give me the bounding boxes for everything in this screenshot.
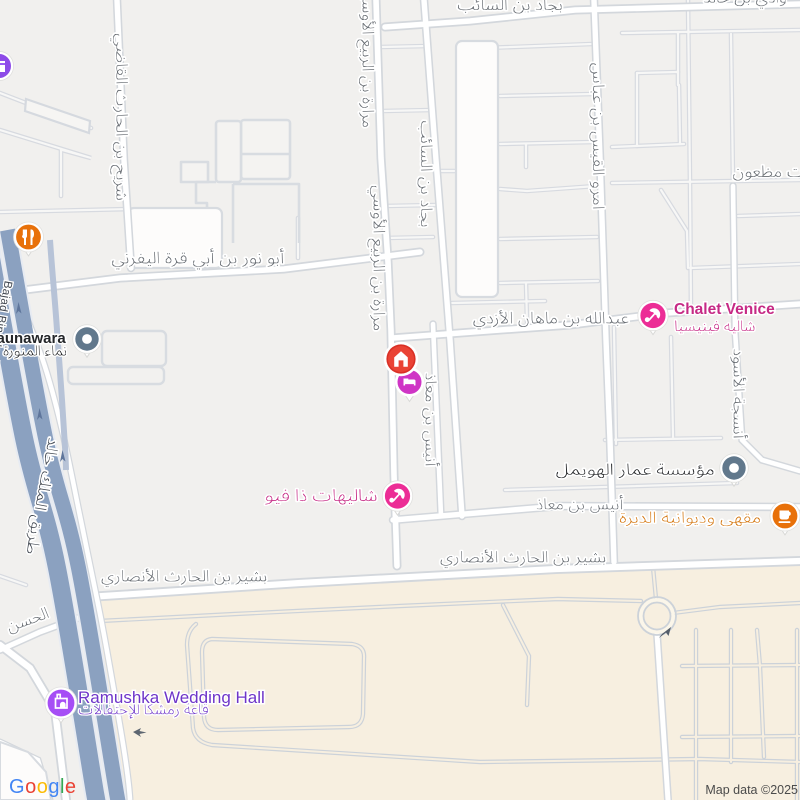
svg-text:Map data ©2025: Map data ©2025 bbox=[705, 783, 798, 797]
svg-text:Maunawara: Maunawara bbox=[0, 330, 66, 347]
svg-text:Chalet Venice: Chalet Venice bbox=[674, 301, 775, 318]
svg-text:Google: Google bbox=[9, 776, 77, 798]
svg-text:Ramushka Wedding Hall: Ramushka Wedding Hall bbox=[78, 688, 265, 707]
